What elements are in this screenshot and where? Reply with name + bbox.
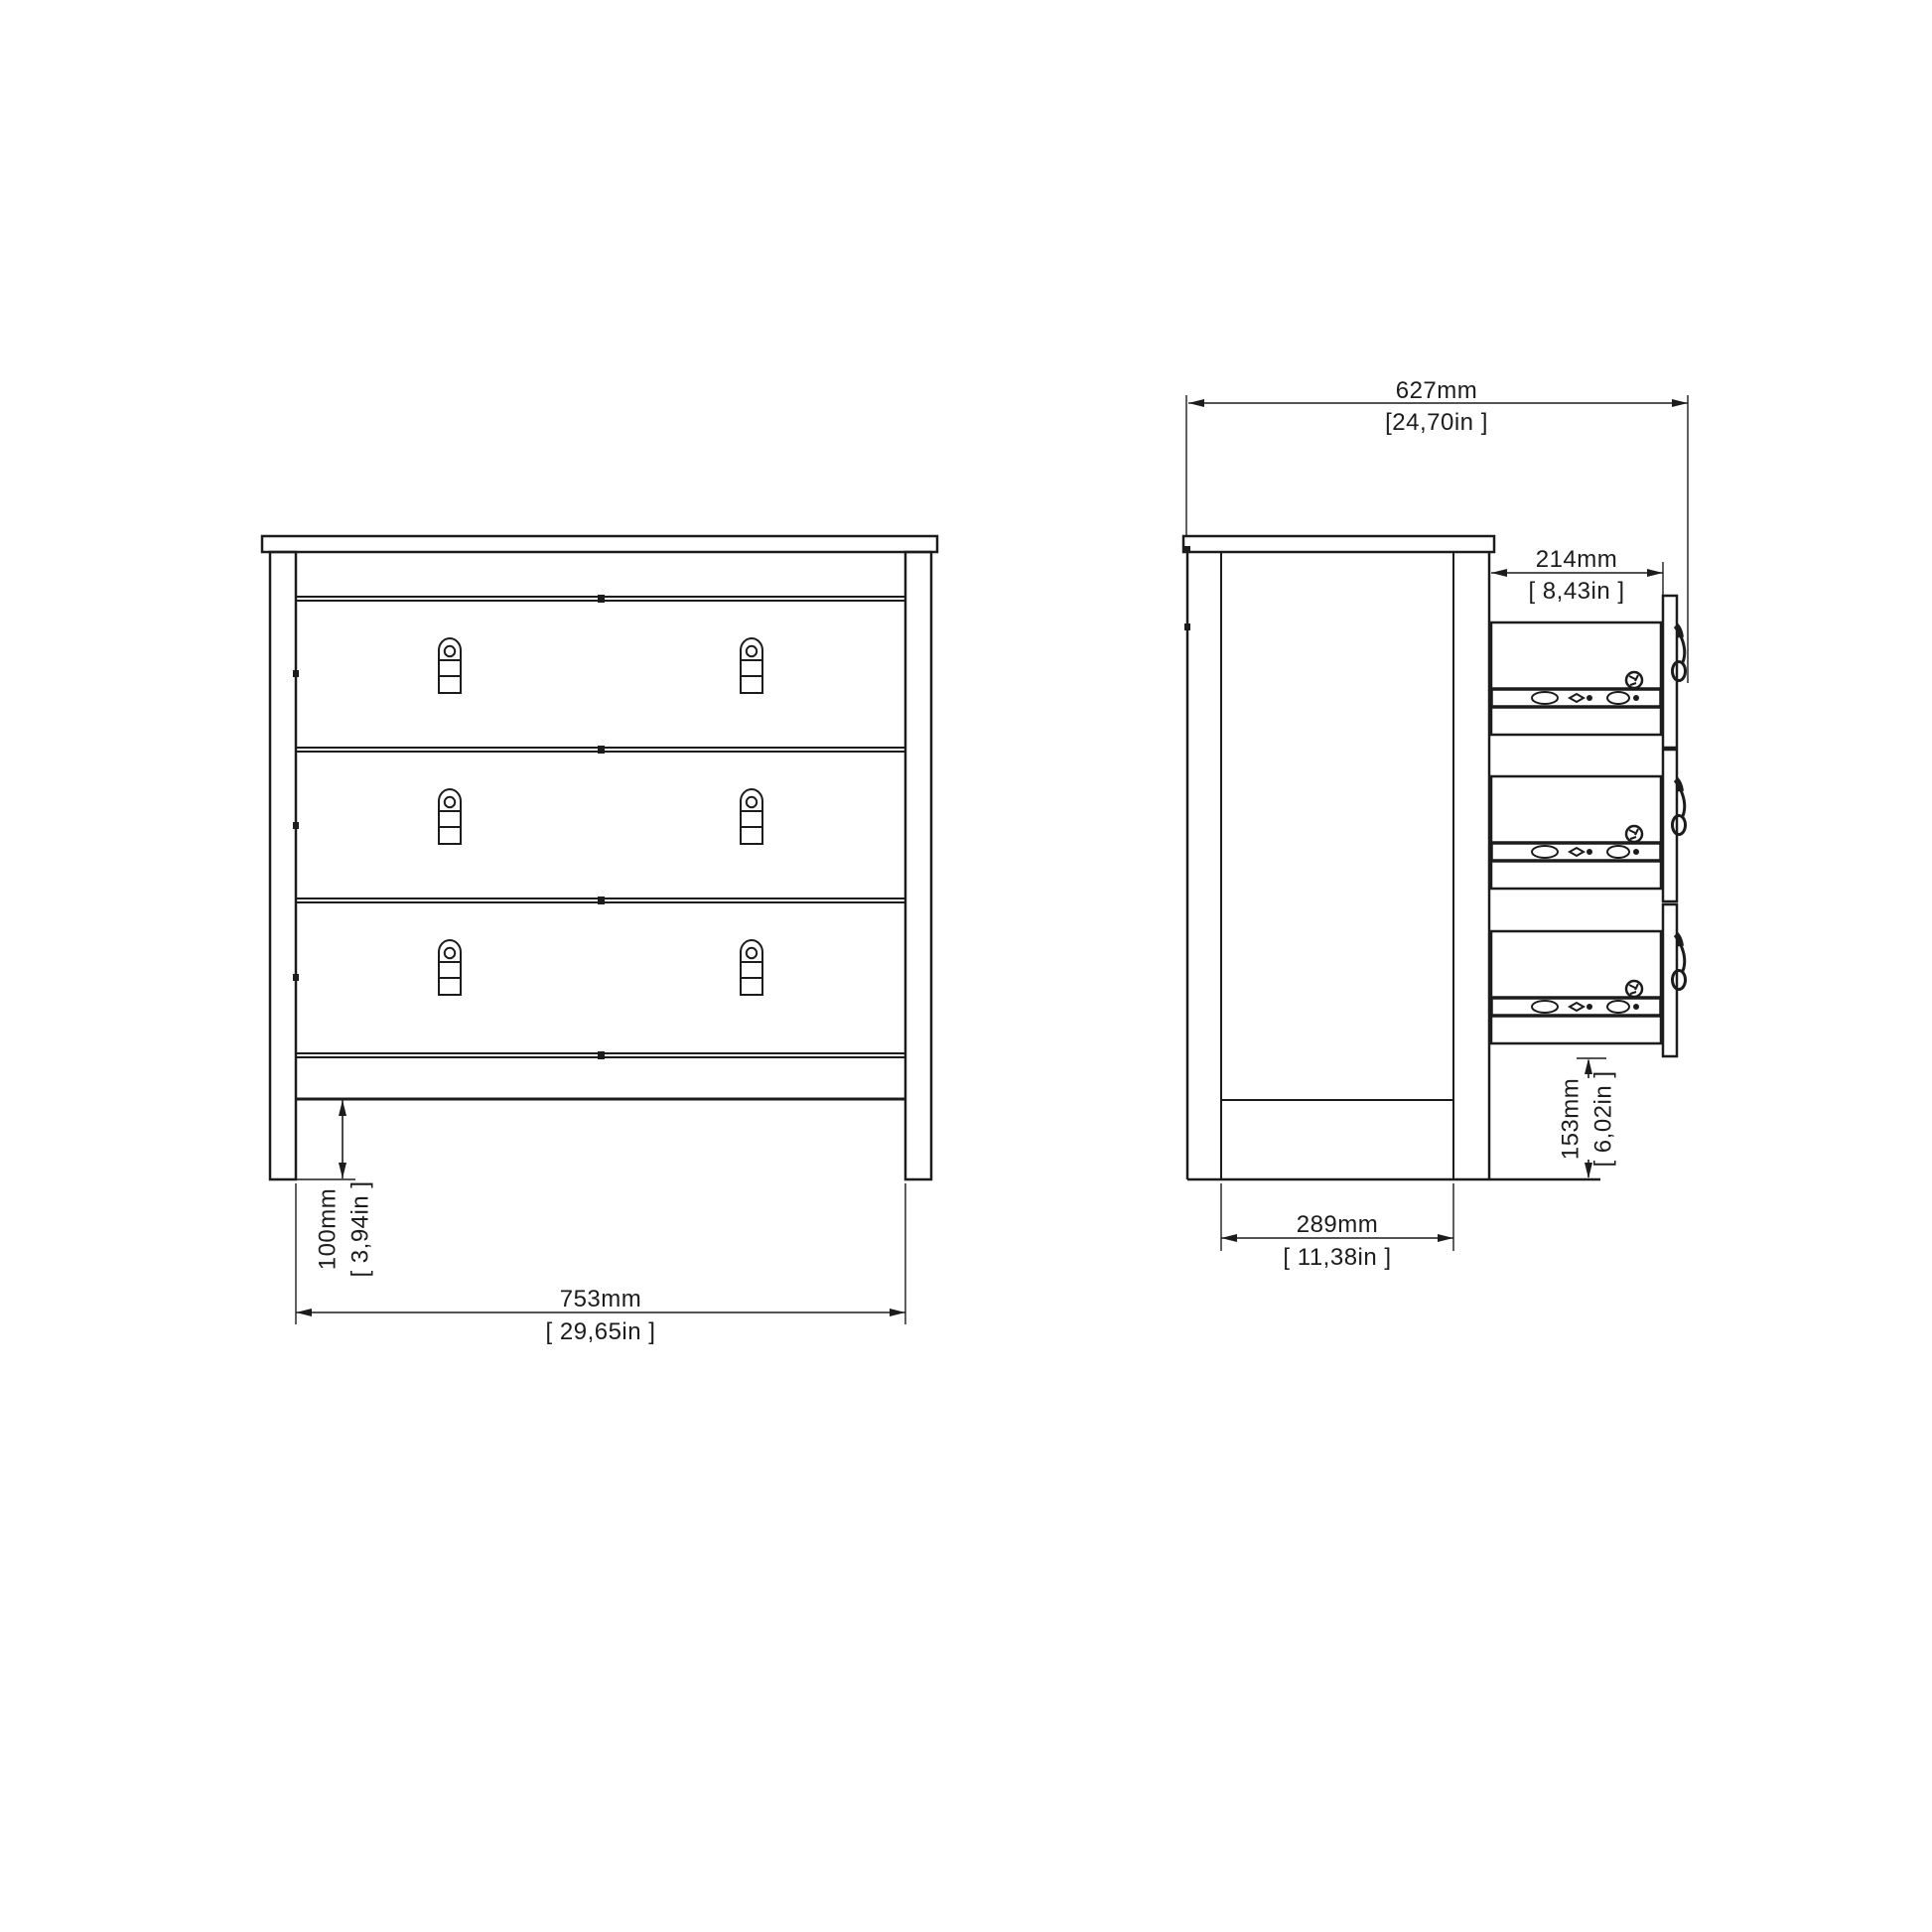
dim-214-imperial: [ 8,43in ] <box>1528 578 1624 605</box>
handle-icon <box>439 638 461 693</box>
side-drawer-3 <box>1491 904 1686 1056</box>
front-right-leg-panel <box>905 552 931 1179</box>
dim-100-imperial: [ 3,94in ] <box>347 1180 374 1277</box>
dim-214-metric: 214mm <box>1536 546 1618 573</box>
side-drawers <box>1491 596 1686 1056</box>
front-top-board <box>262 536 937 552</box>
dim-153-metric: 153mm <box>1558 1078 1585 1161</box>
dimension-overall-width: 753mm [ 29,65in ] <box>296 1183 905 1345</box>
side-top-board <box>1183 536 1494 552</box>
technical-drawing-page: 627mm [24,70in ] 214mm [ 8,43in ] 753mm … <box>0 0 1932 1932</box>
side-drawer-2 <box>1491 750 1686 901</box>
front-view <box>262 536 937 1179</box>
dimension-drawer-front-height: 153mm [ 6,02in ] <box>1558 1058 1617 1178</box>
dim-753-imperial: [ 29,65in ] <box>546 1318 656 1345</box>
handle-icon <box>741 638 762 693</box>
dimension-inner-base-depth: 289mm [ 11,38in ] <box>1221 1183 1453 1271</box>
dimension-plinth-height: 100mm [ 3,94in ] <box>270 1100 374 1278</box>
handle-icon <box>741 940 762 995</box>
dim-100-metric: 100mm <box>315 1188 342 1271</box>
handle-icon <box>741 789 762 844</box>
front-drawer-handles <box>439 638 762 995</box>
dim-753-metric: 753mm <box>560 1286 642 1312</box>
dim-627-imperial: [24,70in ] <box>1385 409 1488 436</box>
side-carcass <box>1184 546 1600 1179</box>
dimension-drawer-side-depth: 214mm [ 8,43in ] <box>1491 546 1663 605</box>
front-left-leg-panel <box>270 552 296 1179</box>
dimension-overall-depth: 627mm [24,70in ] <box>1186 377 1688 683</box>
dim-153-imperial: [ 6,02in ] <box>1590 1070 1617 1167</box>
front-drawer-joints <box>293 595 905 1099</box>
handle-icon <box>439 789 461 844</box>
dim-627-metric: 627mm <box>1396 377 1478 404</box>
dim-289-imperial: [ 11,38in ] <box>1283 1244 1391 1271</box>
handle-icon <box>439 940 461 995</box>
side-drawer-1 <box>1491 596 1686 748</box>
chest-of-drawers-dimension-drawing: 627mm [24,70in ] 214mm [ 8,43in ] 753mm … <box>0 0 1932 1932</box>
dim-289-metric: 289mm <box>1297 1211 1379 1238</box>
